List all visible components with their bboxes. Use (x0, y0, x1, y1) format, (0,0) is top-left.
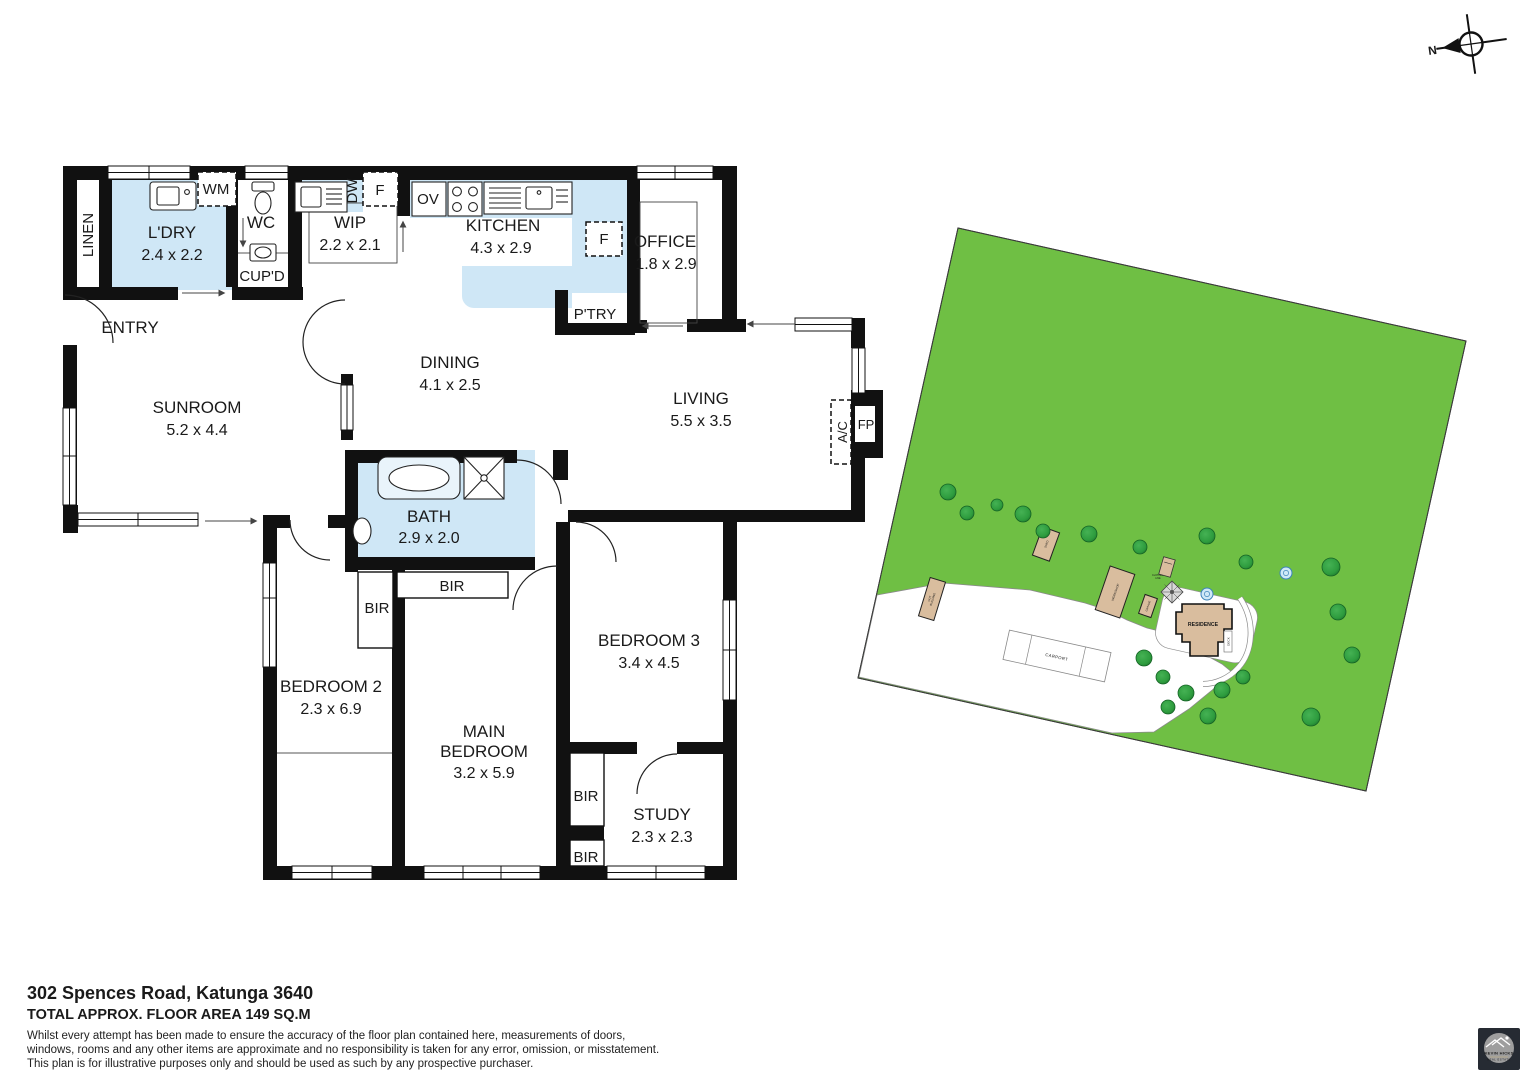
dining-door-arc-2 (303, 342, 345, 384)
room-bedroom2: BEDROOM 2 (280, 677, 382, 696)
room-bedroom3: BEDROOM 3 (598, 631, 700, 650)
room-dining-dims: 4.1 x 2.5 (419, 377, 480, 394)
floor-plan: LINEN L'DRY 2.4 x 2.2 WM WC CUP'D WIP 2.… (63, 166, 883, 880)
room-dining: DINING (420, 353, 480, 372)
plan-svg: CARPORT OUT BUILDING SHED WORKSHOP GARAG… (0, 0, 1527, 1080)
compass: N (1424, 9, 1511, 79)
window-h (245, 166, 288, 179)
floorplan-page: CARPORT OUT BUILDING SHED WORKSHOP GARAG… (0, 0, 1527, 1080)
floor-area-line: TOTAL APPROX. FLOOR AREA 149 SQ.M (27, 1007, 659, 1023)
room-study: STUDY (633, 805, 691, 824)
fp-label: FP (858, 417, 875, 432)
kitchen-sink-icon (484, 182, 572, 214)
address-line: 302 Spences Road, Katunga 3640 (27, 983, 659, 1004)
window-v (341, 385, 353, 430)
logo-tagline: REAL ESTATE (1487, 1058, 1511, 1062)
room-living: LIVING (673, 389, 729, 408)
footer: 302 Spences Road, Katunga 3640 TOTAL APP… (27, 983, 659, 1071)
vanity-basin-icon (353, 518, 371, 544)
room-sunroom: SUNROOM (153, 398, 242, 417)
bir-main-label: BIR (439, 578, 464, 595)
room-sunroom-dims: 5.2 x 4.4 (166, 422, 227, 439)
room-study-dims: 2.3 x 2.3 (631, 829, 692, 846)
bedroom2-door-arc (290, 520, 330, 560)
wm-label: WM (203, 181, 230, 198)
water-tank-1 (1201, 588, 1213, 600)
room-bedroom2-dims: 2.3 x 6.9 (300, 701, 361, 718)
room-wc: WC (247, 213, 275, 232)
room-kitchen: KITCHEN (466, 216, 541, 235)
logo-name: KEVIN HICKS (1484, 1051, 1513, 1056)
room-ptry: P'TRY (574, 306, 617, 323)
window-h (424, 866, 540, 879)
dining-door-arc-1 (303, 300, 345, 342)
room-ldry: L'DRY (148, 223, 196, 242)
toilet-icon (252, 182, 274, 214)
window-h (607, 866, 705, 879)
disclaimer-line-2: windows, rooms and any other items are a… (27, 1043, 659, 1057)
room-bedroom3-dims: 3.4 x 4.5 (618, 655, 679, 672)
laundry-sink-icon (150, 182, 196, 210)
north-label: N (1427, 43, 1438, 58)
bathtub-icon (378, 457, 460, 499)
disclaimer-line-1: Whilst every attempt has been made to en… (27, 1029, 659, 1043)
room-main-line2: BEDROOM (440, 742, 528, 761)
window-v (263, 563, 276, 667)
window-v (63, 408, 76, 505)
room-kitchen-dims: 4.3 x 2.9 (470, 240, 531, 257)
room-entry: ENTRY (101, 318, 158, 337)
deck-label: DECK (1227, 636, 1231, 646)
disclaimer: Whilst every attempt has been made to en… (27, 1029, 659, 1071)
ac-label: A/C (835, 421, 850, 443)
fridge-label-2: F (599, 231, 608, 248)
room-bath: BATH (407, 507, 451, 526)
bir-b3-label-2: BIR (573, 849, 598, 866)
window-h (292, 866, 372, 879)
room-office-dims: 1.8 x 2.9 (635, 256, 696, 273)
study-door-arc (637, 754, 677, 794)
fridge-label-1: F (375, 182, 384, 199)
window-h (637, 166, 713, 179)
agency-logo-icon: KEVIN HICKS REAL ESTATE (1478, 1028, 1520, 1070)
residence-label: RESIDENCE (1188, 622, 1219, 628)
water-tank-2 (1280, 567, 1292, 579)
window-h (795, 318, 852, 331)
wip-sink-icon (295, 182, 347, 212)
bir-b3-label-1: BIR (573, 788, 598, 805)
room-main-line1: MAIN (463, 722, 506, 741)
main-bedroom-door-arc (513, 566, 557, 610)
room-cupd: CUP'D (239, 268, 285, 285)
room-wip-dims: 2.2 x 2.1 (319, 237, 380, 254)
bedroom3-door-arc (576, 522, 616, 562)
oven-label: OV (417, 191, 439, 208)
room-main-dims: 3.2 x 5.9 (453, 765, 514, 782)
wc-basin-icon (250, 244, 276, 261)
disclaimer-line-3: This plan is for illustrative purposes o… (27, 1057, 659, 1071)
room-bath-dims: 2.9 x 2.0 (398, 530, 459, 547)
site-plan: CARPORT OUT BUILDING SHED WORKSHOP GARAG… (858, 228, 1466, 791)
room-office: OFFICE (634, 232, 696, 251)
room-linen: LINEN (80, 213, 97, 257)
room-living-dims: 5.5 x 3.5 (670, 413, 731, 430)
bir-bed2-label: BIR (364, 600, 389, 617)
room-ldry-dims: 2.4 x 2.2 (141, 247, 202, 264)
shower-icon (464, 457, 504, 499)
agency-logo: KEVIN HICKS REAL ESTATE (1478, 1028, 1520, 1070)
window-h (108, 166, 190, 179)
window-h (78, 513, 198, 526)
window-v (723, 600, 736, 700)
window-v (852, 348, 865, 393)
room-wip: WIP (334, 213, 366, 232)
cooktop-icon (448, 182, 482, 216)
dw-label: DW (344, 178, 361, 204)
